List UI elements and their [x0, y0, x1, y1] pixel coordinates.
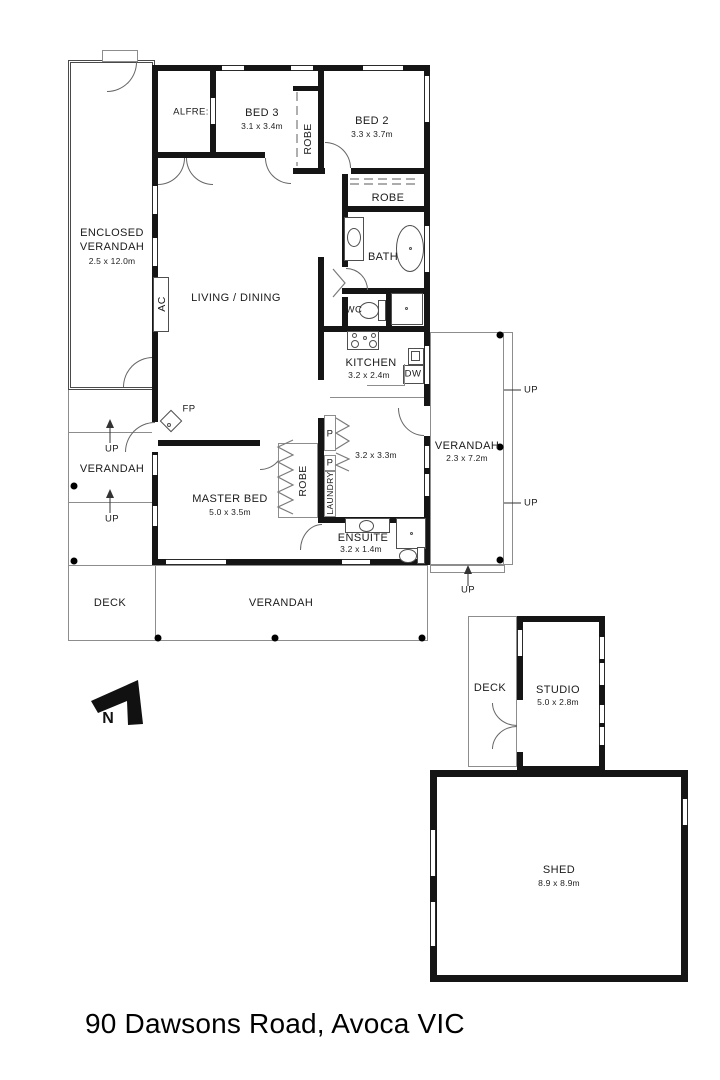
bifold-door: [336, 453, 349, 471]
toilet-cistern: [417, 547, 425, 564]
robe-hall-label: ROBE: [372, 192, 405, 204]
toilet-cistern: [378, 300, 386, 321]
up-label: UP: [524, 385, 538, 396]
up-label: UP: [461, 585, 475, 596]
laundry-label: LAUNDRY: [325, 471, 335, 514]
door-arc: [158, 158, 185, 185]
drain: [410, 532, 413, 535]
door-arc: [346, 268, 368, 290]
entry-step: [102, 50, 138, 62]
property-address: 90 Dawsons Road, Avoca VIC: [85, 1008, 465, 1040]
verandah-right-dims: 2.3 x 7.2m: [446, 453, 488, 463]
toilet-bowl: [399, 549, 417, 563]
robe-master-label: ROBE: [297, 465, 309, 496]
door-arc: [265, 158, 291, 184]
shed-dims: 8.9 x 8.9m: [538, 878, 580, 888]
enclosed-verandah-dims: 2.5 x 12.0m: [89, 256, 136, 266]
studio-deck-label: DECK: [474, 682, 506, 694]
fireplace-flue: [167, 423, 171, 427]
drain: [409, 247, 412, 250]
bath-label: BATH: [368, 251, 398, 263]
master-bed-label: MASTER BED: [192, 493, 268, 505]
verandah-post: [71, 483, 78, 490]
door-arc: [398, 408, 424, 436]
dishwasher-label: DW: [405, 369, 422, 380]
verandah-post: [155, 635, 162, 642]
drain: [405, 307, 408, 310]
shed-label: SHED: [543, 864, 575, 876]
fireplace: [160, 410, 183, 433]
door-arc: [125, 422, 155, 452]
verandah-post: [497, 557, 504, 564]
floor-plan: ENCLOSED VERANDAH 2.5 x 12.0m ALFRE: BED…: [0, 0, 720, 1080]
enclosed-verandah-label-1: ENCLOSED: [80, 227, 144, 239]
burner: [352, 333, 357, 338]
ensuite-dims: 3.2 x 1.4m: [340, 544, 382, 554]
kitchen-label: KITCHEN: [345, 357, 396, 369]
robe-beds-label: ROBE: [302, 123, 314, 154]
bed3-label: BED 3: [245, 107, 279, 119]
meals-dims: 3.2 x 3.3m: [355, 450, 397, 460]
burner: [369, 340, 377, 348]
fireplace-label: FP: [183, 404, 196, 415]
enclosed-verandah-label-2: VERANDAH: [80, 241, 144, 253]
alfresco-label: ALFRE:: [173, 107, 209, 118]
studio-dims: 5.0 x 2.8m: [537, 697, 579, 707]
burner: [363, 336, 367, 340]
master-bed-dims: 5.0 x 3.5m: [209, 507, 251, 517]
sink-bowl: [411, 351, 420, 361]
bed3-dims: 3.1 x 3.4m: [241, 121, 283, 131]
verandah-post: [71, 558, 78, 565]
basin: [359, 520, 374, 532]
door-arc: [300, 524, 322, 550]
door-arc: [186, 158, 213, 185]
bed2-dims: 3.3 x 3.7m: [351, 129, 393, 139]
bed2-label: BED 2: [355, 115, 389, 127]
verandah-post: [497, 332, 504, 339]
verandah-right-label: VERANDAH: [435, 440, 499, 452]
studio-label: STUDIO: [536, 684, 580, 696]
bifold-door: [336, 418, 349, 449]
verandah-left-label: VERANDAH: [80, 463, 144, 475]
up-label: UP: [105, 514, 119, 525]
up-label: UP: [105, 444, 119, 455]
door-arc: [325, 142, 351, 168]
basin: [347, 228, 361, 247]
north-label: N: [102, 710, 114, 728]
burner: [371, 333, 376, 338]
verandah-post: [419, 635, 426, 642]
verandah-bottom-label: VERANDAH: [249, 597, 313, 609]
kitchen-dims: 3.2 x 2.4m: [348, 370, 390, 380]
wc-label: WC: [346, 305, 363, 316]
ensuite-label: ENSUITE: [338, 532, 388, 544]
pantry-label: P: [327, 458, 334, 469]
pantry-label: P: [327, 429, 334, 440]
up-label: UP: [524, 498, 538, 509]
north-arrow-icon: [91, 680, 143, 725]
burner: [351, 340, 359, 348]
verandah-post: [272, 635, 279, 642]
living-dining-label: LIVING / DINING: [191, 292, 281, 304]
ac-label: AC: [156, 296, 168, 311]
deck-label: DECK: [94, 597, 126, 609]
